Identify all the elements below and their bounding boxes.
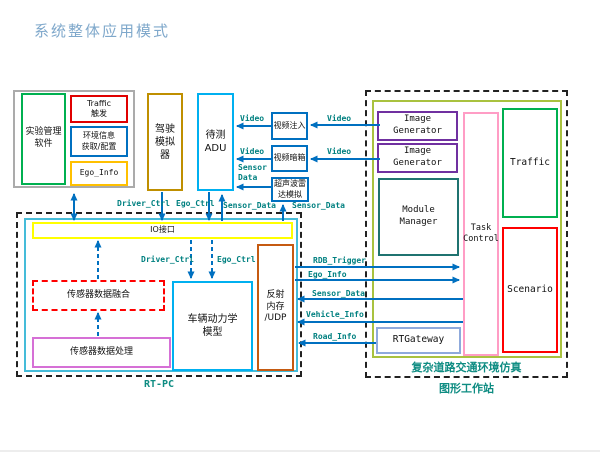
label-sensor-data-right-top: Sensor_Data (292, 201, 345, 211)
node-driving-simulator: 驾驶 模拟 器 (147, 93, 183, 191)
node-rtgateway: RTGateway (376, 327, 461, 354)
page-title: 系统整体应用模式 (34, 20, 170, 41)
node-sensor-data-fusion: 传感器数据融合 (32, 280, 165, 311)
node-module-manager: Module Manager (378, 178, 459, 256)
node-sensor-data-processing: 传感器数据处理 (32, 337, 171, 368)
label-video-right-2: Video (327, 147, 351, 157)
label-sensor-data-2line: Sensor Data (238, 163, 267, 183)
node-adu-under-test: 待测 ADU (197, 93, 234, 191)
node-experiment-mgmt-software: 实验管理 软件 (21, 93, 66, 185)
slide: 系统整体应用模式 实验管理 软件 Traffic 触发 环境信息 获取/配置 E… (0, 0, 600, 452)
label-video-right-1: Video (327, 114, 351, 124)
label-sensor-data-mid: Sensor_Data (312, 289, 365, 299)
node-env-info-config: 环境信息 获取/配置 (70, 126, 128, 157)
node-traffic-trigger: Traffic 触发 (70, 95, 128, 123)
node-image-generator-2: Image Generator (377, 143, 458, 173)
node-reflective-memory-udp: 反射 内存 /UDP (257, 244, 294, 371)
caption-graphics-workstation: 图形工作站 (365, 380, 568, 396)
node-scenario: Scenario (502, 227, 558, 353)
label-rdb-trigger: RDB_Trigger (313, 256, 366, 266)
label-ego-info: Ego_Info (308, 270, 347, 280)
node-vehicle-dynamics-model: 车辆动力学 模型 (172, 281, 253, 371)
label-video-left-2: Video (240, 147, 264, 157)
caption-rt-pc: RT-PC (16, 379, 302, 390)
node-ego-info: Ego_Info (70, 161, 128, 186)
node-ultrasonic-radar-sim: 超声波雷 达模拟 (271, 177, 309, 202)
node-video-injection: 视频注入 (271, 112, 308, 140)
label-driver-ctrl-top: Driver_Ctrl (117, 199, 170, 209)
node-task-control: Task Control (463, 112, 499, 356)
label-driver-ctrl-inner: Driver_Ctrl (141, 255, 194, 265)
node-video-darkbox: 视频暗箱 (271, 145, 308, 172)
label-road-info: Road_Info (313, 332, 356, 342)
label-video-left-1: Video (240, 114, 264, 124)
label-ego-ctrl-inner: Ego_Ctrl (217, 255, 256, 265)
label-sensor-data-top: Sensor_Data (223, 201, 276, 211)
node-image-generator-1: Image Generator (377, 111, 458, 141)
node-io-interface: IO接口 (32, 222, 293, 239)
node-traffic: Traffic (502, 108, 558, 218)
label-vehicle-info: Vehicle_Info (306, 310, 364, 320)
caption-sim-env: 复杂道路交通环境仿真 (365, 359, 568, 375)
label-ego-ctrl-top: Ego_Ctrl (176, 199, 215, 209)
